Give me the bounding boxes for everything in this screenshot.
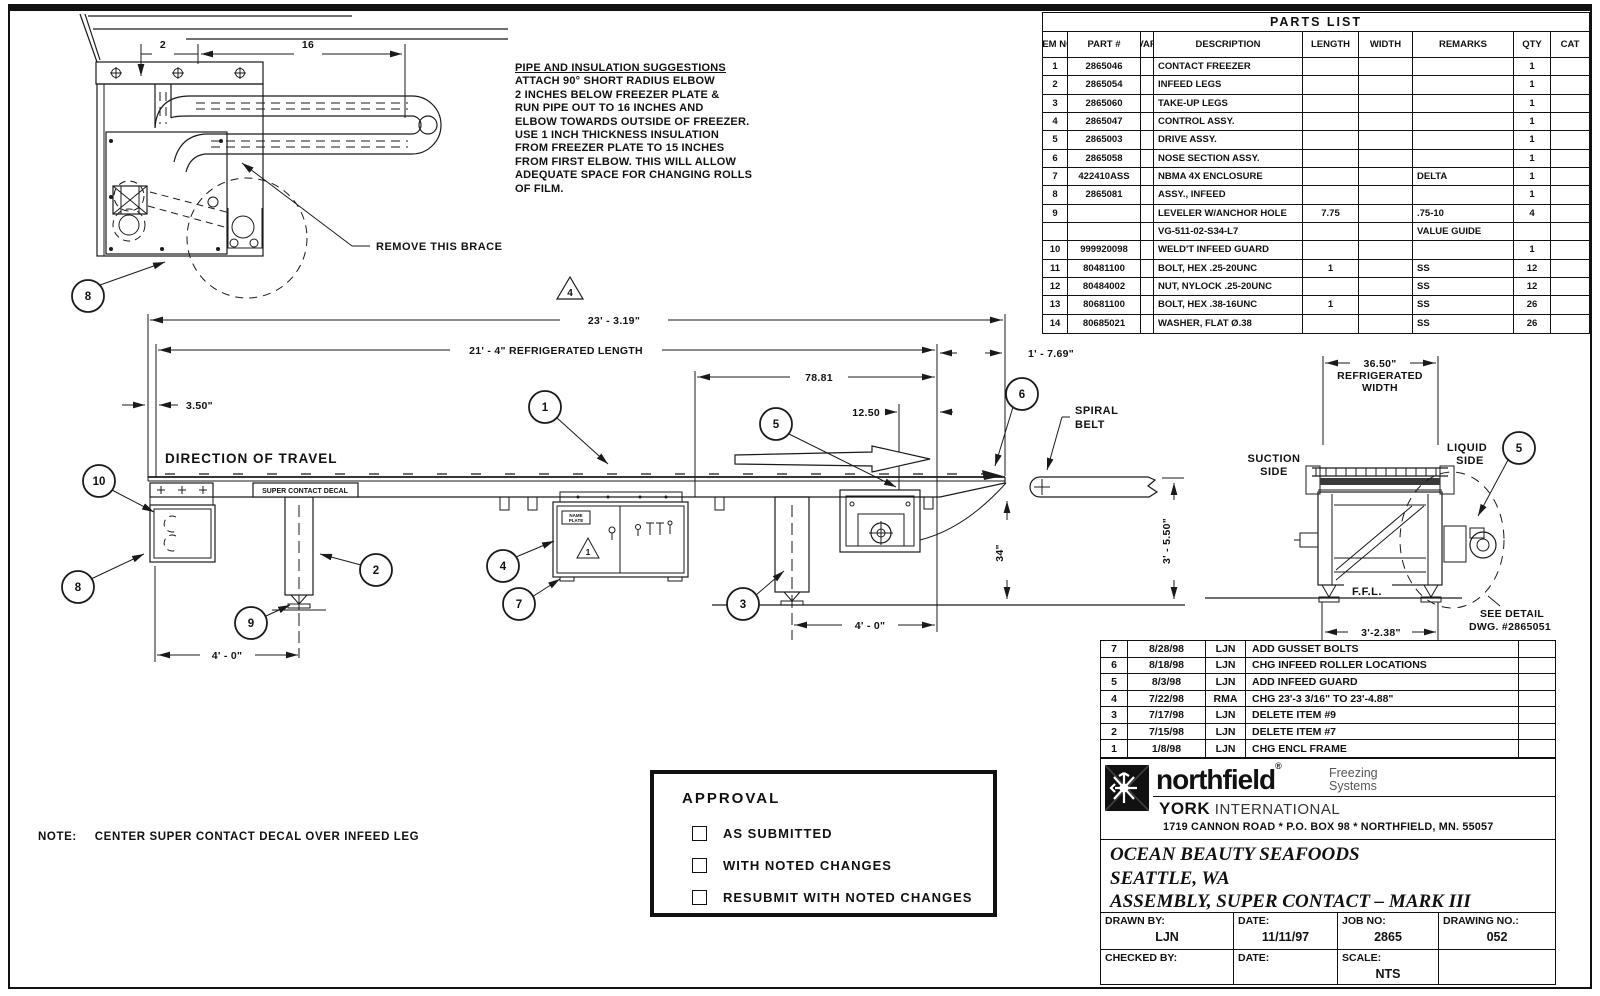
infeed-leg xyxy=(272,497,326,645)
revision-row: 27/15/98LJNDELETE ITEM #7 xyxy=(1101,724,1555,741)
parts-row: 12865046CONTACT FREEZER1 xyxy=(1043,58,1589,76)
liquid-side-label-2: SIDE xyxy=(1456,455,1484,467)
approval-box: APPROVAL AS SUBMITTED WITH NOTED CHANGES… xyxy=(650,770,997,917)
balloon-8: 8 xyxy=(62,554,144,603)
col-var: VAR xyxy=(1141,32,1154,58)
direction-arrow xyxy=(735,446,930,472)
svg-text:4: 4 xyxy=(500,561,507,573)
approval-option-as-submitted: AS SUBMITTED xyxy=(692,826,833,841)
control-assembly: NAME PLATE 1 xyxy=(553,492,688,581)
parts-row: 1480685021WASHER, FLAT Ø.38SS26 xyxy=(1043,315,1589,333)
revision-row: 47/22/98RMACHG 23'-3 3/16" TO 23'-4.88" xyxy=(1101,691,1555,708)
super-contact-decal-label: SUPER CONTACT DECAL xyxy=(262,488,349,495)
parts-row: 32865060TAKE-UP LEGS1 xyxy=(1043,95,1589,113)
date2-cell: DATE: xyxy=(1234,950,1338,985)
pipe-note-line: FROM FREEZER PLATE TO 15 INCHES xyxy=(515,142,765,155)
dim-refrigerated: 21' - 4" REFRIGERATED LENGTH xyxy=(469,345,643,357)
drawn-by-cell: DRAWN BY:LJN xyxy=(1101,913,1234,950)
svg-text:9: 9 xyxy=(248,618,254,630)
svg-text:7: 7 xyxy=(516,599,522,611)
brand-section: northfield® Freezing Systems YORK INTERN… xyxy=(1101,759,1555,840)
balloon-2: 2 xyxy=(320,554,392,586)
pipe-note-line: FROM FIRST ELBOW. THIS WILL ALLOW xyxy=(515,156,765,169)
brand-divider xyxy=(1153,796,1555,797)
pipe-note-title: PIPE AND INSULATION SUGGESTIONS xyxy=(515,62,726,74)
col-length: LENGTH xyxy=(1303,32,1359,58)
liquid-side-label-1: LIQUID xyxy=(1447,442,1487,454)
svg-text:8: 8 xyxy=(75,582,82,594)
balloon-1: 1 xyxy=(529,391,608,464)
title-block-fields: DRAWN BY:LJN DATE:11/11/97 JOB NO:2865 D… xyxy=(1101,913,1555,985)
col-qty: QTY xyxy=(1514,32,1551,58)
svg-text:2: 2 xyxy=(373,565,379,577)
pipe-note-line: ELBOW TOWARDS OUTSIDE OF FREEZER. xyxy=(515,116,765,129)
parts-row: 42865047CONTROL ASSY.1 xyxy=(1043,113,1589,131)
infeed-assembly xyxy=(150,483,215,562)
parts-row: 1280484002NUT, NYLOCK .25-20UNCSS12 xyxy=(1043,278,1589,296)
pipe-note-line: RUN PIPE OUT TO 16 INCHES AND xyxy=(515,102,765,115)
parts-row: 22865054INFEED LEGS1 xyxy=(1043,76,1589,94)
bolt-marks xyxy=(110,67,246,79)
drawing-no-cell: DRAWING NO.:052 xyxy=(1439,913,1555,950)
resubmit-label: RESUBMIT WITH NOTED CHANGES xyxy=(723,890,972,905)
pipe-note-line: ATTACH 90° SHORT RADIUS ELBOW xyxy=(515,75,765,88)
resubmit-checkbox[interactable] xyxy=(692,890,707,905)
parts-row: 9LEVELER W/ANCHOR HOLE7.75.75-104 xyxy=(1043,205,1589,223)
as-submitted-checkbox[interactable] xyxy=(692,826,707,841)
parts-row: 1380681100BOLT, HEX .38-16UNC1SS26 xyxy=(1043,296,1589,314)
decal-note-text: CENTER SUPER CONTACT DECAL OVER INFEED L… xyxy=(95,831,419,843)
parts-row: 10999920098WELD'T INFEED GUARD1 xyxy=(1043,241,1589,259)
end-view-machine xyxy=(1294,466,1504,608)
drive-assembly xyxy=(840,490,920,552)
with-changes-checkbox[interactable] xyxy=(692,858,707,873)
see-detail-note-1: SEE DETAIL xyxy=(1480,608,1544,620)
col-description: DESCRIPTION xyxy=(1154,32,1303,58)
registered-mark: ® xyxy=(1275,761,1281,771)
scale-cell: SCALE:NTS xyxy=(1338,950,1439,985)
main-elevation-view: 23' - 3.19" 21' - 4" REFRIGERATED LENGTH… xyxy=(62,277,1185,662)
revision-row: 37/17/98LJNDELETE ITEM #9 xyxy=(1101,707,1555,724)
svg-text:3: 3 xyxy=(740,599,746,611)
blank-cell xyxy=(1439,950,1555,985)
assembly-title: ASSEMBLY, SUPER CONTACT – MARK III xyxy=(1110,890,1555,914)
name-plate-line2: PLATE xyxy=(569,518,583,523)
spiral-belt-label-1: SPIRAL xyxy=(1075,405,1118,417)
col-item: ITEM NO. xyxy=(1043,32,1068,58)
revision-row: 68/18/98LJNCHG INFEED ROLLER LOCATIONS xyxy=(1101,658,1555,675)
approval-option-with-changes: WITH NOTED CHANGES xyxy=(692,858,892,873)
ffl-label: F.F.L. xyxy=(1352,586,1382,598)
approval-title: APPROVAL xyxy=(682,790,780,807)
col-width: WIDTH xyxy=(1359,32,1413,58)
parts-row: VG-511-02-S34-L7VALUE GUIDE xyxy=(1043,223,1589,241)
date-cell: DATE:11/11/97 xyxy=(1234,913,1338,950)
parts-list-table: PARTS LIST ITEM NO. PART # VAR DESCRIPTI… xyxy=(1042,12,1590,334)
svg-text:1: 1 xyxy=(542,402,549,414)
parts-list-title: PARTS LIST xyxy=(1043,13,1589,32)
revision-flag-label: 4 xyxy=(567,288,573,299)
balloon-4: 4 xyxy=(487,541,554,582)
dim-7881: 78.81 xyxy=(805,372,833,384)
job-no-cell: JOB NO:2865 xyxy=(1338,913,1439,950)
pipe-note-line: ADEQUATE SPACE FOR CHANGING ROLLS xyxy=(515,169,765,182)
detail-dim-2: 2 xyxy=(160,39,166,51)
decal-note: NOTE:CENTER SUPER CONTACT DECAL OVER INF… xyxy=(38,831,419,843)
brand-name: northfield® xyxy=(1156,761,1281,796)
infeed-detail-view: 2 16 REMOVE THIS BRACE 8 xyxy=(72,14,508,312)
parts-row: 62865058NOSE SECTION ASSY.1 xyxy=(1043,150,1589,168)
customer-section: OCEAN BEAUTY SEAFOODS SEATTLE, WA ASSEMB… xyxy=(1101,840,1555,913)
title-block: northfield® Freezing Systems YORK INTERN… xyxy=(1100,758,1556,985)
dim-1250: 12.50 xyxy=(852,407,880,419)
pipe-note-line: 2 INCHES BELOW FREEZER PLATE & xyxy=(515,89,765,102)
col-cat: CAT xyxy=(1551,32,1589,58)
dim-1769: 1' - 7.69" xyxy=(1028,348,1074,360)
detail-dim-16: 16 xyxy=(302,39,314,51)
direction-of-travel-label: DIRECTION OF TRAVEL xyxy=(165,451,338,466)
takeup-leg xyxy=(775,497,809,640)
company-name: YORK INTERNATIONAL xyxy=(1159,799,1340,819)
insulated-pipe xyxy=(155,84,441,172)
with-changes-label: WITH NOTED CHANGES xyxy=(723,858,892,873)
balloon-7: 7 xyxy=(503,579,560,620)
end-dim-width-label2: WIDTH xyxy=(1362,382,1398,394)
spiral-belt-label-2: BELT xyxy=(1075,419,1105,431)
remove-brace-note: REMOVE THIS BRACE xyxy=(376,241,502,253)
spiral-belt: SPIRAL BELT xyxy=(920,405,1157,540)
dim-infeed-span: 4' - 0" xyxy=(212,650,243,662)
end-dim-base: 3'-2.38" xyxy=(1361,627,1401,639)
end-dim-width-label1: REFRIGERATED xyxy=(1337,370,1423,382)
balloon-3: 3 xyxy=(727,571,784,620)
dim-overall: 23' - 3.19" xyxy=(588,315,640,327)
end-dim-width: 36.50" xyxy=(1363,358,1396,370)
warning-triangle-label: 1 xyxy=(586,547,591,557)
parts-row: 1180481100BOLT, HEX .25-20UNC1SS12 xyxy=(1043,260,1589,278)
end-view: 36.50" REFRIGERATED WIDTH xyxy=(1205,356,1551,640)
checked-by-cell: CHECKED BY: xyxy=(1101,950,1234,985)
brand-tagline: Freezing Systems xyxy=(1329,767,1378,793)
revision-row: 11/8/98LJNCHG ENCL FRAME xyxy=(1101,740,1555,757)
approval-option-resubmit: RESUBMIT WITH NOTED CHANGES xyxy=(692,890,972,905)
customer-name: OCEAN BEAUTY SEAFOODS xyxy=(1110,843,1555,867)
suction-side-label-2: SIDE xyxy=(1260,466,1288,478)
decal-note-label: NOTE: xyxy=(38,831,77,843)
col-remarks: REMARKS xyxy=(1413,32,1514,58)
parts-row: 52865003DRIVE ASSY.1 xyxy=(1043,131,1589,149)
revision-row: 78/28/98LJNADD GUSSET BOLTS xyxy=(1101,641,1555,658)
customer-location: SEATTLE, WA xyxy=(1110,867,1555,891)
revision-table: 78/28/98LJNADD GUSSET BOLTS 68/18/98LJNC… xyxy=(1100,640,1556,758)
see-detail-note-2: DWG. #2865051 xyxy=(1469,621,1551,633)
dim-350: 3.50" xyxy=(186,400,213,412)
dim-takeup-span: 4' - 0" xyxy=(855,620,886,632)
parts-row: 7422410ASSNBMA 4X ENCLOSUREDELTA1 xyxy=(1043,168,1589,186)
pipe-note-line: USE 1 INCH THICKNESS INSULATION xyxy=(515,129,765,142)
svg-text:5: 5 xyxy=(773,419,780,431)
balloon-8-detail-label: 8 xyxy=(85,291,92,303)
col-part: PART # xyxy=(1068,32,1141,58)
suction-side-label-1: SUCTION xyxy=(1248,453,1301,465)
as-submitted-label: AS SUBMITTED xyxy=(723,826,833,841)
parts-list-header: ITEM NO. PART # VAR DESCRIPTION LENGTH W… xyxy=(1043,32,1589,58)
parts-row: 82865081ASSY., INFEED1 xyxy=(1043,186,1589,204)
company-address: 1719 CANNON ROAD * P.O. BOX 98 * NORTHFI… xyxy=(1163,821,1493,833)
pipe-insulation-note: PIPE AND INSULATION SUGGESTIONS ATTACH 9… xyxy=(515,62,765,196)
dim-34: 34" xyxy=(994,544,1006,562)
pipe-note-line: OF FILM. xyxy=(515,183,765,196)
svg-text:5: 5 xyxy=(1516,443,1523,455)
balloon-6: 6 xyxy=(995,378,1038,466)
snowflake-logo-icon xyxy=(1105,765,1149,811)
revision-row: 58/3/98LJNADD INFEED GUARD xyxy=(1101,674,1555,691)
svg-text:6: 6 xyxy=(1019,389,1025,401)
svg-text:10: 10 xyxy=(93,476,106,488)
dim-3550: 3' - 5.50" xyxy=(1161,518,1173,564)
drawing-sheet: 2 16 REMOVE THIS BRACE 8 23' - 3.19" xyxy=(0,0,1600,996)
balloon-10: 10 xyxy=(83,465,154,512)
